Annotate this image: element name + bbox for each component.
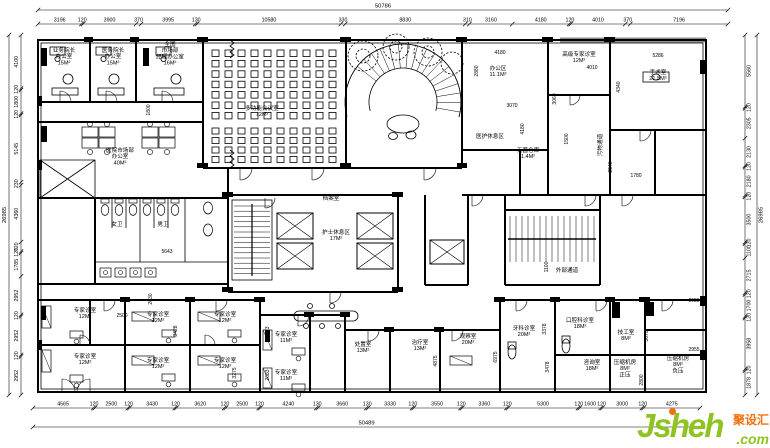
room-label: 档案室 [323, 194, 340, 202]
inline-dimension: 1100 [544, 261, 550, 272]
dimension-text: 1785 [14, 259, 20, 271]
dimension-text: 4565 [57, 402, 69, 408]
door-arc [62, 379, 75, 392]
dimension-text: 120 [597, 402, 606, 408]
dimension-text: 130 [363, 402, 372, 408]
desk [82, 127, 98, 137]
inline-dimension: 3378 [542, 323, 548, 334]
room-label: 手术室21.5M² [649, 68, 667, 82]
generated-annotations: 3196120390037039951301058033088303103160… [2, 4, 765, 430]
inline-dimension: 4875 [433, 355, 439, 366]
door-arc [106, 91, 117, 102]
dimension-text: 10580 [262, 18, 277, 24]
dimension-text: 1800 [14, 96, 20, 108]
room-label: 专家诊室12M² [74, 352, 97, 366]
door-arc [516, 300, 527, 311]
desk [292, 384, 305, 391]
dimension-text: 3000 [616, 402, 628, 408]
dimension-text: 120 [747, 365, 753, 374]
dimension-text: 120 [221, 402, 230, 408]
dimension-text: 120 [14, 351, 20, 360]
inline-dimension: 2500 [116, 313, 127, 319]
door-arc [570, 95, 580, 105]
dimension-text: 120 [408, 402, 417, 408]
door-arc [640, 130, 651, 141]
dimension-text: 370 [134, 18, 143, 24]
door-arc [330, 292, 341, 303]
desk [159, 138, 175, 148]
inline-dimension: 5643 [161, 249, 172, 255]
room-label: 医务院长办公室15M² [102, 46, 125, 66]
desk [99, 138, 115, 148]
dimension-text: 2305 [747, 117, 753, 129]
inline-dimension: 3478 [545, 361, 551, 372]
room-label: 医护休息区 [476, 132, 504, 140]
desk [70, 331, 83, 338]
inline-dimension: 4180 [494, 50, 505, 56]
dimension-text: 3620 [194, 402, 206, 408]
dimension-text: 120 [574, 402, 583, 408]
room-label: 专家诊室11M² [275, 330, 298, 344]
inline-dimension: 1780 [630, 173, 641, 179]
dimension-text: 3550 [431, 402, 443, 408]
dimension-text: 4180 [535, 18, 547, 24]
dimension-text: 3900 [104, 18, 116, 24]
door-arc [60, 91, 71, 102]
dimension-text: 1600 [584, 402, 596, 408]
room-label: 牙科诊室20M² [513, 324, 536, 338]
dimension-text: 120 [503, 402, 512, 408]
inline-dimension: 3428 [173, 325, 179, 336]
dimension-text: 3160 [485, 18, 497, 24]
desk [142, 127, 158, 137]
inline-dimension: 4010 [586, 65, 597, 71]
dimension-text: 7196 [673, 18, 685, 24]
dimension-text: 4010 [592, 18, 604, 24]
door-arc [240, 168, 252, 180]
dimension-text: 370 [623, 18, 632, 24]
room-label: 专家诊室12M² [147, 356, 170, 370]
floor-plan: 3196120390037039951301058033088303103160… [0, 0, 770, 448]
room-label: 护士休息区17M² [322, 228, 350, 242]
dimension-text: 5560 [747, 65, 753, 77]
dimension-text: 5145 [14, 143, 20, 155]
dimension-text: 2180 [747, 175, 753, 187]
inline-dimension: 3060 [552, 93, 558, 104]
room-label: 治疗室13M² [412, 338, 429, 352]
dimension-text: 120 [457, 402, 466, 408]
inline-dimension: 1500 [564, 133, 570, 144]
dimension-text: 3196 [54, 18, 66, 24]
room-label: 无菌仓库1.4M² [517, 146, 540, 160]
dimension-text: 2952 [14, 370, 20, 382]
door-arc [622, 195, 633, 206]
inline-dimension: 6975 [493, 351, 499, 362]
inline-dimension: 3275 [232, 367, 238, 378]
inline-dimension: 2880 [474, 65, 480, 76]
room-label: 外部通道 [556, 266, 579, 274]
desk [70, 375, 83, 382]
toilet-icon [157, 205, 165, 216]
dimension-text: 130 [192, 18, 201, 24]
door-arc [424, 168, 436, 180]
dimension-text: 120 [747, 313, 753, 322]
dimension-text: 2952 [14, 330, 20, 342]
inline-dimension: 2955 [688, 298, 699, 304]
dimension-text: 120 [747, 103, 753, 112]
inline-dimension: 3070 [506, 103, 517, 109]
desk [142, 138, 158, 148]
dimension-text: 120 [14, 311, 20, 320]
inline-dimension: 2955 [688, 347, 699, 353]
room-label: 男卫 [157, 221, 169, 228]
toilet-icon [171, 205, 179, 216]
door-arc [472, 195, 483, 206]
room-label: 口腔科诊室18M² [566, 316, 594, 330]
inline-dimension: 3070 [644, 330, 650, 341]
dimension-text: 120 [124, 402, 133, 408]
room-label: 女卫 [111, 220, 123, 228]
dimension-text: 8830 [399, 18, 411, 24]
dimension-text: 3995 [162, 18, 174, 24]
spiral-stair-island [387, 115, 419, 140]
dimension-text: 120 [566, 18, 575, 24]
overall-dimension: 50786 [375, 4, 391, 10]
dimension-text: 3430 [146, 402, 158, 408]
dimension-text: 2715 [747, 270, 753, 282]
toilet-icon [115, 205, 123, 216]
room-label: 压缩机房8M²正压 [614, 358, 637, 378]
dimension-text: 2130 [747, 146, 753, 158]
dimension-text: 2952 [14, 290, 20, 302]
inline-dimension: 4180 [520, 123, 526, 134]
inline-dimension: 5286 [652, 53, 663, 59]
dimension-text: 1700 [747, 300, 753, 312]
door-arc [585, 195, 596, 206]
room-label: 业务院长办公室15M² [53, 46, 76, 66]
desk [162, 374, 175, 381]
desk [292, 348, 305, 355]
inline-dimension: 4340 [616, 81, 622, 92]
dimension-text: 120 [90, 402, 99, 408]
room-label: 专家诊室11M² [275, 368, 298, 382]
desk [99, 127, 115, 137]
dimension-text: 120 [255, 402, 264, 408]
door-arc [312, 168, 324, 180]
dimension-text: 120 [14, 110, 20, 119]
toilet-icon [143, 205, 151, 216]
dimension-text: 310 [463, 18, 472, 24]
dimension-text: 3330 [384, 402, 396, 408]
desk [82, 138, 98, 148]
room-label: 办公区11.1M² [490, 64, 507, 78]
dimension-text: 3958 [747, 338, 753, 350]
door-arc [216, 300, 227, 311]
dimension-text: 120 [171, 402, 180, 408]
floor-plan-canvas: 3196120390037039951301058033088303103160… [0, 0, 770, 448]
room-label: 污物通道 [596, 133, 604, 156]
room-label: 压缩机房8M²负压 [667, 354, 690, 374]
dimension-text: 120 [747, 289, 753, 298]
dimension-text: 120 [638, 402, 647, 408]
room-label: 多功能会议室72M² [245, 104, 279, 118]
dimension-text: 230 [14, 179, 20, 188]
room-label: 技工室8M² [618, 328, 635, 342]
overall-dimension: 26985 [2, 207, 8, 223]
inline-dimension: 2030 [148, 293, 154, 304]
walls [38, 40, 706, 392]
door-arc [662, 300, 673, 311]
desk [228, 330, 241, 337]
dimension-text: 3660 [336, 402, 348, 408]
inline-dimension: 2800 [639, 374, 645, 385]
inline-dimension: 1800 [146, 104, 152, 115]
dimension-text: 120 [78, 18, 87, 24]
partitions [40, 40, 703, 389]
overall-dimension: 50489 [358, 421, 374, 427]
door-arc [80, 335, 90, 345]
room-label: 高级专家诊室12M² [562, 50, 596, 64]
dimension-text: 120 [747, 162, 753, 171]
toilet-icon [101, 205, 109, 216]
dimension-text: 120 [747, 192, 753, 201]
door-arc [265, 198, 275, 208]
room-label: 专家诊室12M² [74, 306, 97, 320]
desk [159, 127, 175, 137]
dimension-text: 330 [339, 18, 348, 24]
dimension-text: 120 [14, 85, 20, 94]
dimension-text: 1100 [747, 245, 753, 256]
room-label: 全国市场部经理办公室16M² [156, 40, 184, 67]
door-arc [205, 335, 215, 345]
dimension-text: 4360 [14, 208, 20, 220]
dimension-text: 1878 [747, 377, 753, 389]
inline-dimension: 2540 [608, 161, 614, 172]
toilet-icon [129, 205, 137, 216]
room-label: 处置室13M² [355, 340, 372, 354]
door-arc [162, 91, 173, 102]
room-label: 医院市场部办公室40M² [106, 146, 134, 166]
dimension-text: 2500 [105, 402, 117, 408]
dimension-text: 120 [14, 248, 20, 257]
dimension-text: 4100 [14, 56, 20, 68]
room-label: 咨询室18M² [584, 358, 601, 372]
dimension-text: 2500 [236, 402, 248, 408]
overall-dimension: 26985 [759, 207, 765, 223]
dimension-text: 3360 [478, 402, 490, 408]
dimension-text: 5300 [537, 402, 549, 408]
dimension-text: 3500 [747, 214, 753, 226]
dimension-text: 130 [313, 402, 322, 408]
dimension-text: 4275 [666, 402, 678, 408]
dimension-text: 4240 [282, 402, 294, 408]
door-arc [104, 300, 115, 311]
door-arc [368, 330, 379, 341]
